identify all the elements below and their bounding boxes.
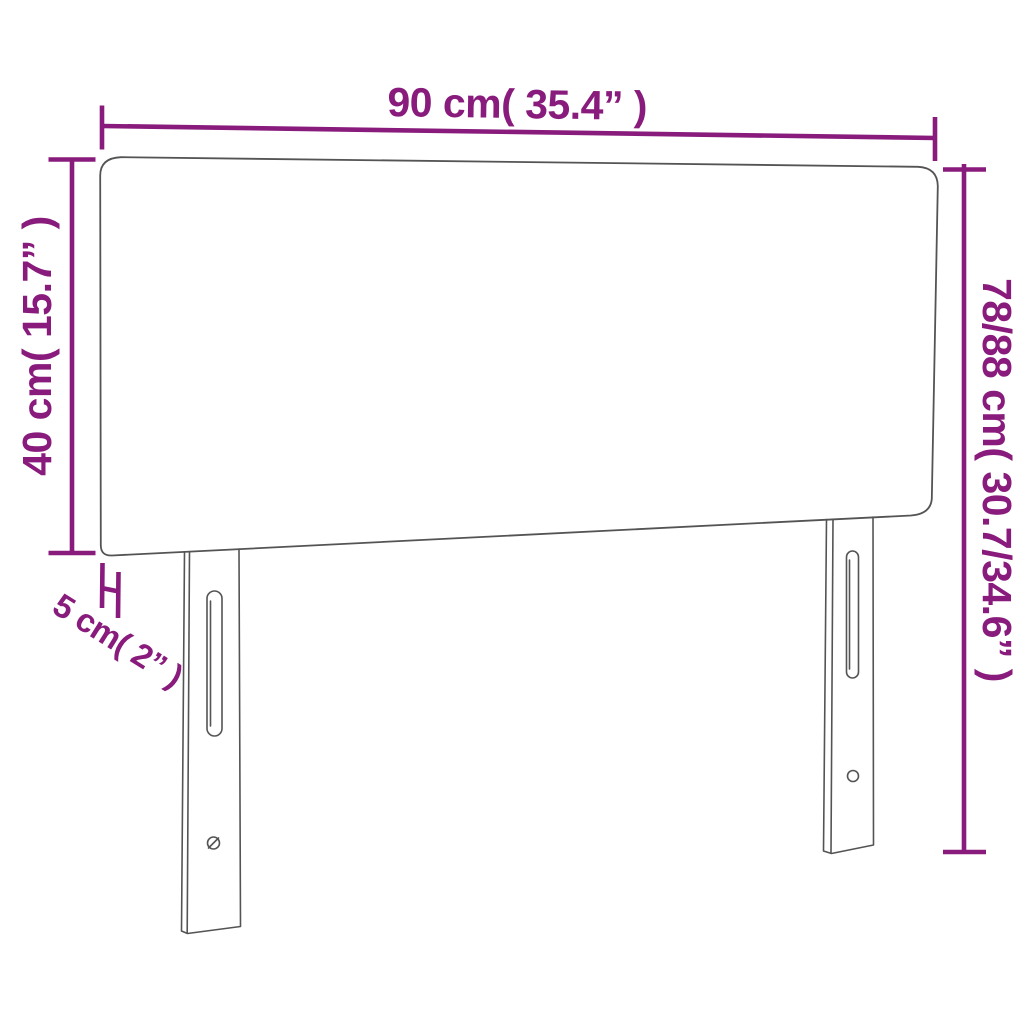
- headboard-panel: [100, 157, 938, 555]
- screw-hole-circle: [848, 771, 859, 782]
- left-leg-screw-hole: [208, 837, 220, 849]
- right-height-dimension-label: 78/88 cm( 30.7/34.6” ): [974, 278, 1020, 682]
- right-leg-screw-hole: [848, 771, 859, 782]
- right-height-dimension: 78/88 cm( 30.7/34.6” ): [943, 164, 1020, 852]
- left-leg-inner-edge: [187, 552, 189, 933]
- right-leg-slot: [847, 551, 859, 678]
- left-leg: [182, 549, 241, 934]
- thickness-tick-left: [102, 563, 103, 608]
- right-leg: [824, 517, 874, 854]
- left-height-dimension-label: 40 cm( 15.7” ): [14, 216, 60, 476]
- thickness-tick-right: [118, 572, 119, 618]
- thickness-dimension: 5 cm( 2” ): [47, 563, 190, 694]
- width-dimension-line: [102, 126, 935, 138]
- screw-slot-line: [209, 838, 219, 848]
- width-dimension: 90 cm( 35.4” ): [102, 79, 935, 161]
- dimension-diagram-canvas: 90 cm( 35.4” ) 40 cm( 15.7” ) 78/88 cm( …: [0, 0, 1024, 1024]
- width-dimension-label: 90 cm( 35.4” ): [387, 79, 647, 129]
- right-leg-inner-edge: [831, 519, 833, 852]
- headboard-dimension-diagram: 90 cm( 35.4” ) 40 cm( 15.7” ) 78/88 cm( …: [0, 0, 1024, 1024]
- left-height-dimension: 40 cm( 15.7” ): [14, 160, 96, 554]
- left-leg-slot: [207, 591, 222, 736]
